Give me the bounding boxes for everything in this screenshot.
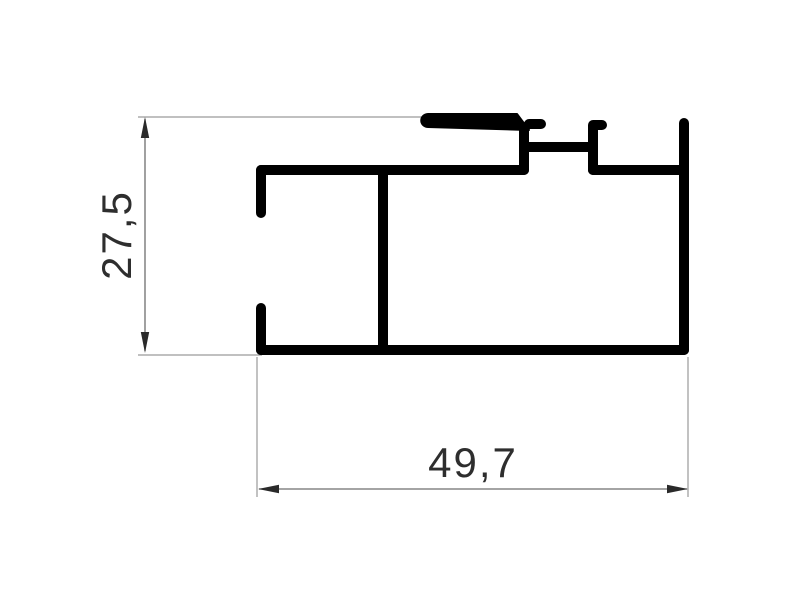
profile-gasket-fin	[421, 114, 529, 130]
height-dimension-label: 27,5	[93, 190, 140, 280]
arrow-down-icon	[141, 332, 149, 353]
arrow-up-icon	[141, 117, 149, 138]
profile-drawing-svg: 27,5 49,7	[0, 0, 800, 600]
arrow-left-icon	[258, 485, 279, 493]
profile-glazing-clip	[524, 124, 602, 170]
arrow-right-icon	[667, 485, 688, 493]
width-dimension-label: 49,7	[428, 439, 518, 486]
drawing-canvas: 27,5 49,7	[0, 0, 800, 600]
